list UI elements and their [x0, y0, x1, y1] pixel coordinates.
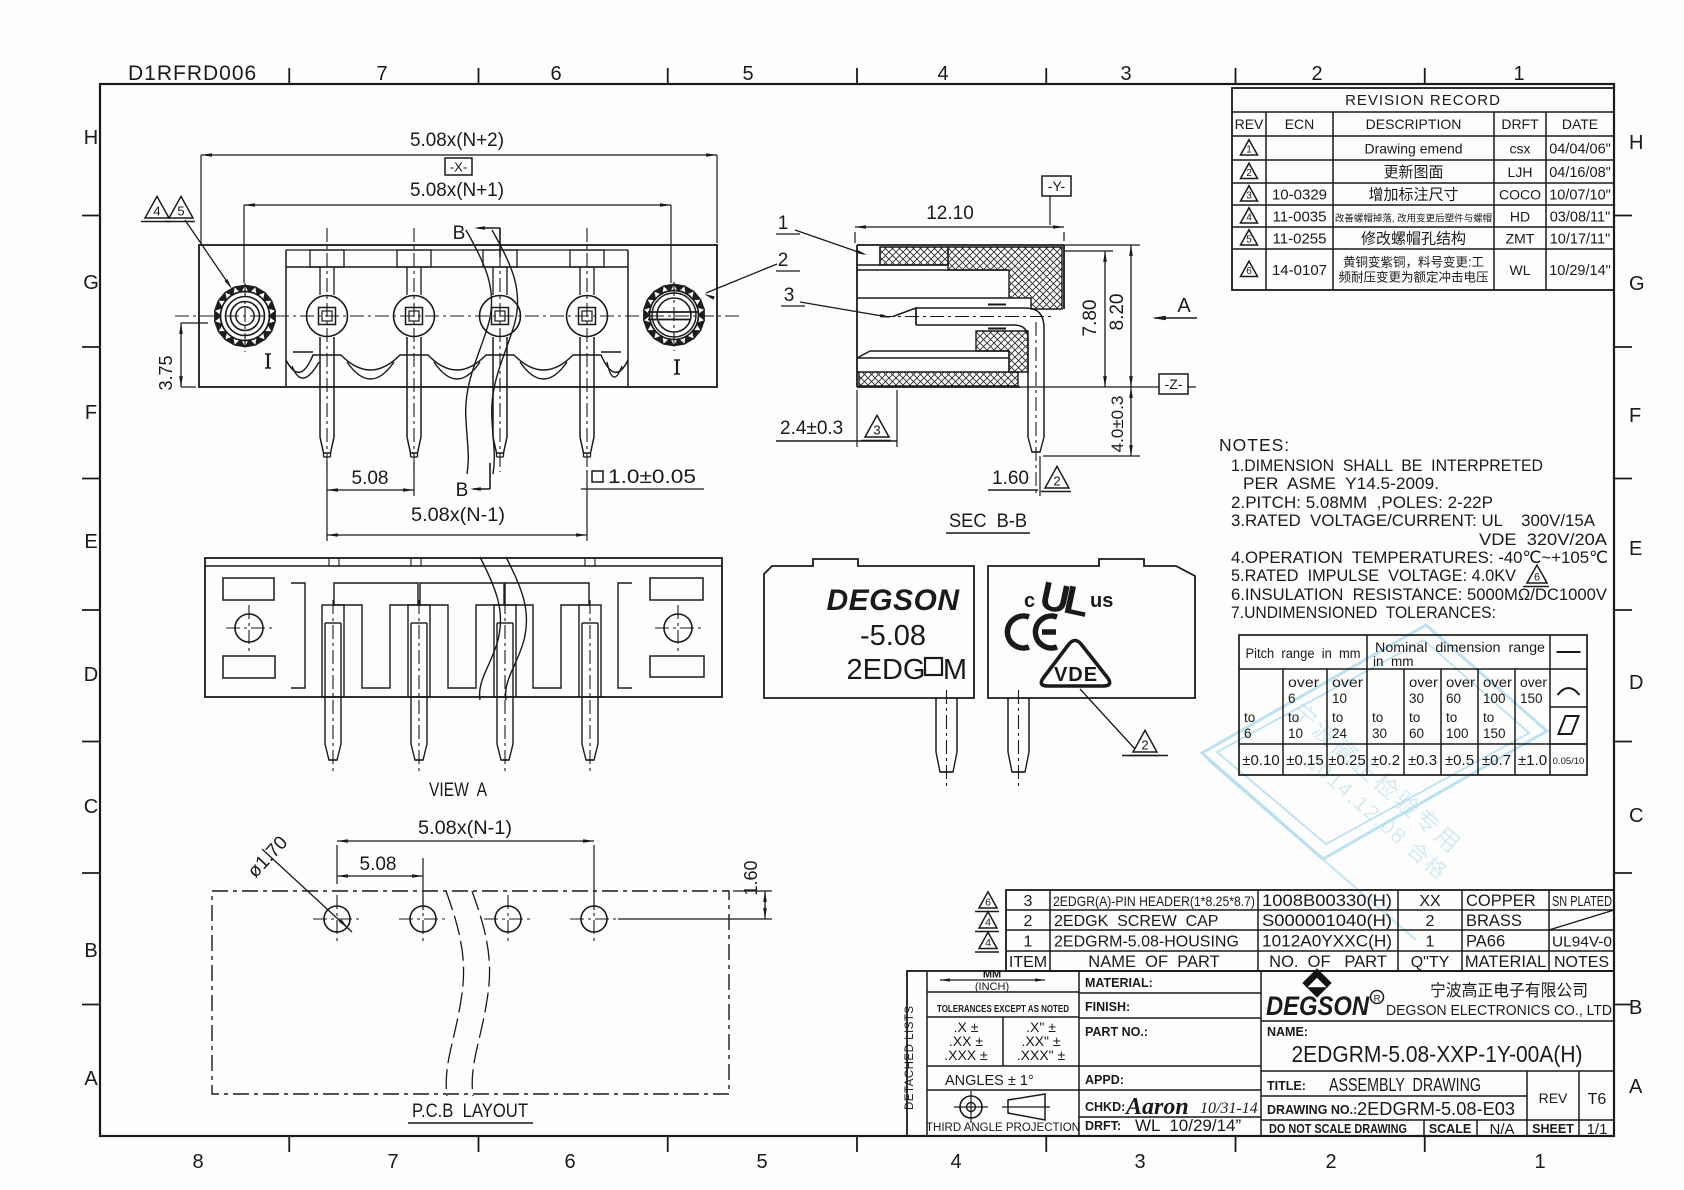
svg-text:2EDGR(A)-PIN HEADER(1*8.25*8.7: 2EDGR(A)-PIN HEADER(1*8.25*8.7): [1053, 893, 1255, 909]
svg-text:DESCRIPTION: DESCRIPTION: [1366, 116, 1462, 132]
svg-text:ECN: ECN: [1285, 116, 1315, 132]
svg-text:REV: REV: [1235, 116, 1264, 132]
svg-text:150: 150: [1483, 726, 1506, 741]
svg-text:4: 4: [1246, 213, 1252, 224]
svg-text:(INCH): (INCH): [975, 981, 1009, 993]
svg-text:4.OPERATION TEMPERATURES: -40: 4.OPERATION TEMPERATURES: -40℃~+105℃: [1231, 548, 1608, 567]
svg-text:Pitch range in mm: Pitch range in mm: [1246, 646, 1361, 661]
svg-text:TITLE:: TITLE:: [1267, 1079, 1306, 1093]
svg-text:±0.2: ±0.2: [1371, 752, 1400, 769]
svg-text:ASSEMBLY DRAWING: ASSEMBLY DRAWING: [1329, 1075, 1481, 1095]
svg-text:M: M: [943, 654, 967, 686]
svg-text:5.08x(N-1): 5.08x(N-1): [411, 505, 505, 526]
svg-text:SEC B-B: SEC B-B: [949, 511, 1027, 532]
svg-text:-X-: -X-: [450, 160, 467, 175]
svg-text:10/07/10": 10/07/10": [1549, 188, 1611, 204]
svg-text:2EDG: 2EDG: [847, 654, 926, 686]
svg-text:THIRD ANGLE PROJECTION: THIRD ANGLE PROJECTION: [926, 1122, 1080, 1134]
svg-text:UL94V-0: UL94V-0: [1552, 935, 1612, 951]
svg-text:黄铜变紫铜，料号变更:工: 黄铜变紫铜，料号变更:工: [1343, 255, 1484, 270]
svg-text:6.INSULATION RESISTANCE: 5000: 6.INSULATION RESISTANCE: 5000MΩ/DC1000V: [1231, 585, 1608, 604]
svg-text:12.10: 12.10: [926, 203, 974, 224]
svg-text:1.60: 1.60: [992, 468, 1029, 489]
svg-text:10: 10: [1288, 726, 1303, 741]
svg-text:6: 6: [1288, 691, 1296, 706]
svg-text:CHKD:: CHKD:: [1085, 1100, 1125, 1114]
svg-text:5: 5: [756, 1151, 767, 1173]
svg-text:1.60: 1.60: [741, 860, 761, 895]
svg-text:F: F: [1629, 405, 1641, 427]
svg-text:DEGSON: DEGSON: [1266, 991, 1369, 1021]
svg-text:PA66: PA66: [1466, 933, 1505, 951]
svg-text:NO. OF PART: NO. OF PART: [1269, 953, 1387, 971]
svg-text:150: 150: [1520, 691, 1543, 706]
svg-text:2: 2: [1024, 913, 1033, 930]
svg-text:4: 4: [985, 937, 991, 949]
svg-text:1: 1: [778, 213, 789, 234]
svg-text:10/31-14: 10/31-14: [1200, 1100, 1258, 1117]
svg-text:MM: MM: [983, 969, 1001, 981]
svg-text:DRFT: DRFT: [1501, 116, 1539, 132]
svg-text:6: 6: [550, 63, 561, 85]
svg-text:SCALE: SCALE: [1429, 1122, 1471, 1136]
svg-text:Nominal dimension range: Nominal dimension range: [1375, 640, 1545, 655]
svg-text:5: 5: [1246, 235, 1252, 246]
svg-text:6: 6: [985, 897, 991, 909]
svg-text:100: 100: [1483, 691, 1506, 706]
svg-text:C: C: [1629, 805, 1643, 827]
svg-text:REV: REV: [1539, 1090, 1568, 1106]
svg-text:ZMT: ZMT: [1506, 231, 1535, 247]
svg-text:14-0107: 14-0107: [1272, 262, 1327, 279]
svg-text:±0.10: ±0.10: [1242, 752, 1279, 769]
svg-text:to: to: [1372, 710, 1383, 725]
svg-text:E: E: [1629, 538, 1642, 560]
svg-text:B: B: [456, 480, 469, 501]
svg-text:T6: T6: [1588, 1091, 1607, 1108]
svg-text:0.05/10: 0.05/10: [1553, 756, 1585, 767]
svg-text:B: B: [453, 223, 466, 244]
svg-text:7.80: 7.80: [1080, 300, 1101, 337]
svg-text:2: 2: [1325, 1151, 1336, 1173]
svg-text:LJH: LJH: [1508, 164, 1533, 180]
svg-text:Q"TY: Q"TY: [1411, 954, 1450, 971]
svg-text:3: 3: [1246, 191, 1252, 202]
svg-text:COCO: COCO: [1499, 187, 1541, 203]
svg-text:4: 4: [985, 917, 991, 929]
svg-text:3: 3: [1134, 1151, 1145, 1173]
svg-text:MATERIAL:: MATERIAL:: [1085, 976, 1153, 990]
svg-text:to: to: [1446, 710, 1457, 725]
svg-text:增加标注尺寸: 增加标注尺寸: [1368, 187, 1458, 204]
svg-text:±0.25: ±0.25: [1328, 752, 1365, 769]
svg-text:N/A: N/A: [1489, 1121, 1514, 1138]
svg-text:03/08/11": 03/08/11": [1550, 210, 1611, 226]
svg-text:to: to: [1409, 710, 1420, 725]
svg-text:30: 30: [1409, 691, 1424, 706]
svg-text:±0.7: ±0.7: [1482, 752, 1511, 769]
svg-text:DEGSON ELECTRONICS CO., LTD: DEGSON ELECTRONICS CO., LTD: [1386, 1002, 1612, 1019]
svg-text:Drawing emend: Drawing emend: [1364, 141, 1462, 157]
svg-text:COPPER: COPPER: [1466, 892, 1536, 910]
svg-text:5.08: 5.08: [352, 468, 389, 489]
svg-text:G: G: [83, 272, 99, 294]
svg-text:7: 7: [376, 63, 387, 85]
svg-text:over: over: [1332, 675, 1364, 690]
svg-text:-Y-: -Y-: [1048, 178, 1066, 194]
svg-text:to: to: [1332, 710, 1343, 725]
svg-text:改善螺帽掉落, 改用变更后塑件与螺帽: 改善螺帽掉落, 改用变更后塑件与螺帽: [1335, 213, 1492, 225]
svg-text:ANGLES ± 1°: ANGLES ± 1°: [945, 1073, 1034, 1089]
svg-text:over: over: [1483, 675, 1513, 690]
svg-text:DRFT:: DRFT:: [1085, 1119, 1121, 1133]
svg-text:4: 4: [950, 1151, 961, 1173]
svg-text:6: 6: [1246, 266, 1252, 277]
svg-text:DATE: DATE: [1562, 116, 1598, 132]
svg-text:to: to: [1288, 710, 1299, 725]
svg-text:2: 2: [1311, 63, 1322, 85]
svg-text:MATERIAL: MATERIAL: [1465, 953, 1546, 971]
svg-text:1: 1: [1246, 145, 1252, 156]
svg-text:5.08x(N+1): 5.08x(N+1): [410, 180, 504, 201]
svg-text:5: 5: [177, 204, 184, 219]
svg-text:B: B: [84, 940, 97, 962]
svg-text:2: 2: [1426, 913, 1435, 930]
svg-text:60: 60: [1409, 726, 1424, 741]
svg-text:in mm: in mm: [1373, 654, 1414, 669]
svg-text:XX: XX: [1419, 893, 1441, 910]
svg-text:A: A: [1629, 1076, 1643, 1098]
svg-text:6: 6: [564, 1151, 575, 1173]
svg-text:over: over: [1520, 675, 1548, 690]
svg-text:FINISH:: FINISH:: [1085, 1000, 1130, 1014]
svg-text:over: over: [1446, 675, 1476, 690]
svg-text:DRAWING NO.:: DRAWING NO.:: [1267, 1103, 1357, 1117]
svg-text:4.0±0.3: 4.0±0.3: [1108, 396, 1127, 453]
svg-text:over: over: [1409, 675, 1439, 690]
svg-text:修改螺帽孔结构: 修改螺帽孔结构: [1361, 231, 1466, 248]
svg-text:1008B00330(H): 1008B00330(H): [1262, 892, 1392, 910]
svg-text:1: 1: [1534, 1151, 1545, 1173]
svg-text:2EDGRM-5.08-E03: 2EDGRM-5.08-E03: [1357, 1099, 1515, 1119]
svg-text:.XXX" ±: .XXX" ±: [1017, 1047, 1066, 1063]
svg-text:D: D: [84, 664, 98, 686]
svg-text:over: over: [1288, 675, 1320, 690]
svg-text:24: 24: [1332, 726, 1348, 741]
svg-text:更新图面: 更新图面: [1383, 164, 1443, 181]
svg-text:2.4±0.3: 2.4±0.3: [780, 418, 843, 439]
svg-text:04/16/08": 04/16/08": [1549, 165, 1611, 181]
svg-text:VIEW A: VIEW A: [429, 780, 487, 801]
svg-text:DEGSON: DEGSON: [826, 584, 960, 617]
svg-text:宁波高正电子有限公司: 宁波高正电子有限公司: [1430, 981, 1588, 1000]
svg-text:NAME OF PART: NAME OF PART: [1088, 953, 1219, 971]
svg-text:A: A: [84, 1068, 98, 1090]
svg-text:2.PITCH: 5.08MM ,POLES: 2-22P: 2.PITCH: 5.08MM ,POLES: 2-22P: [1231, 493, 1493, 512]
svg-text:VDE: VDE: [1054, 664, 1098, 686]
svg-text:1/1: 1/1: [1587, 1121, 1608, 1138]
svg-text:04/04/06": 04/04/06": [1549, 142, 1611, 158]
svg-text:3: 3: [1120, 63, 1131, 85]
svg-text:csx: csx: [1510, 141, 1531, 157]
svg-text:Aaron: Aaron: [1124, 1094, 1189, 1120]
svg-text:2: 2: [1141, 738, 1148, 753]
svg-text:1012A0YXXC(H): 1012A0YXXC(H): [1262, 933, 1392, 951]
svg-text:10: 10: [1332, 691, 1347, 706]
svg-text:2EDGK SCREW CAP: 2EDGK SCREW CAP: [1054, 913, 1218, 930]
svg-text:H: H: [84, 127, 98, 149]
svg-text:SHEET: SHEET: [1532, 1122, 1574, 1136]
svg-text:2: 2: [778, 250, 789, 271]
svg-text:±0.5: ±0.5: [1445, 752, 1474, 769]
svg-text:ITEM: ITEM: [1009, 954, 1047, 971]
svg-text:E: E: [84, 531, 97, 553]
svg-text:2EDGRM-5.08-XXP-1Y-00A(H): 2EDGRM-5.08-XXP-1Y-00A(H): [1292, 1041, 1583, 1067]
svg-text:WL: WL: [1510, 262, 1531, 278]
svg-text:3: 3: [873, 423, 880, 438]
svg-text:B: B: [1629, 997, 1642, 1019]
svg-text:REVISION RECORD: REVISION RECORD: [1345, 92, 1501, 109]
svg-text:6: 6: [1244, 726, 1252, 741]
svg-text:.XXX ±: .XXX ±: [944, 1047, 988, 1063]
svg-text:±0.3: ±0.3: [1408, 752, 1437, 769]
svg-text:-Z-: -Z-: [1165, 376, 1183, 392]
svg-text:5.RATED IMPULSE VOLTAGE: 4.0: 5.RATED IMPULSE VOLTAGE: 4.0KV: [1231, 566, 1517, 585]
svg-text:4: 4: [937, 63, 948, 85]
svg-text:10-0329: 10-0329: [1272, 187, 1327, 204]
svg-text:±1.0: ±1.0: [1518, 752, 1547, 769]
svg-text:2EDGRM-5.08-HOUSING: 2EDGRM-5.08-HOUSING: [1054, 934, 1239, 951]
svg-text:DETACHED LISTS: DETACHED LISTS: [904, 1005, 916, 1110]
svg-text:7: 7: [387, 1151, 398, 1173]
svg-text:1.0±0.05: 1.0±0.05: [608, 467, 696, 488]
svg-text:R: R: [1374, 994, 1381, 1005]
svg-text:TOLERANCES EXCEPT AS NOTED: TOLERANCES EXCEPT AS NOTED: [937, 1004, 1069, 1015]
svg-text:8.20: 8.20: [1107, 294, 1128, 331]
svg-text:频耐压变更为额定冲击电压: 频耐压变更为额定冲击电压: [1338, 270, 1488, 285]
svg-text:10/29/14": 10/29/14": [1549, 263, 1611, 279]
svg-text:1.DIMENSION SHALL BE INTERP: 1.DIMENSION SHALL BE INTERPRETED: [1231, 456, 1543, 475]
svg-text:us: us: [1090, 590, 1113, 612]
svg-text:NOTES:: NOTES:: [1219, 435, 1290, 455]
svg-text:3.RATED VOLTAGE/CURRENT: UL: 3.RATED VOLTAGE/CURRENT: UL 300V/15A: [1231, 511, 1596, 530]
svg-text:100: 100: [1446, 726, 1469, 741]
svg-text:2: 2: [1053, 474, 1060, 489]
svg-text:H: H: [1629, 132, 1643, 154]
svg-text:3: 3: [784, 285, 795, 306]
svg-text:G: G: [1629, 273, 1645, 295]
svg-text:S000001040(H): S000001040(H): [1262, 912, 1392, 930]
svg-text:HD: HD: [1510, 209, 1530, 225]
svg-text:DO NOT SCALE DRAWING: DO NOT SCALE DRAWING: [1269, 1122, 1407, 1136]
svg-text:6: 6: [1534, 572, 1540, 584]
svg-text:11-0255: 11-0255: [1273, 231, 1327, 248]
svg-text:D: D: [1629, 672, 1643, 694]
svg-text:1: 1: [1513, 63, 1524, 85]
svg-text:P.C.B LAYOUT: P.C.B LAYOUT: [412, 1101, 528, 1122]
svg-text:60: 60: [1446, 691, 1461, 706]
svg-text:5.08: 5.08: [360, 854, 397, 875]
svg-text:A: A: [1177, 295, 1191, 317]
svg-text:PART NO.:: PART NO.:: [1085, 1025, 1148, 1039]
svg-text:APPD:: APPD:: [1085, 1073, 1124, 1087]
svg-text:SN PLATED: SN PLATED: [1552, 894, 1612, 910]
svg-text:11-0035: 11-0035: [1273, 209, 1327, 226]
svg-text:F: F: [85, 402, 97, 424]
svg-text:2: 2: [1246, 168, 1252, 179]
svg-text:BRASS: BRASS: [1466, 912, 1522, 930]
svg-text:3.75: 3.75: [156, 355, 176, 390]
svg-text:D1RFRD006: D1RFRD006: [128, 62, 257, 85]
svg-text:30: 30: [1372, 726, 1387, 741]
svg-text:PER ASME Y14.5-2009.: PER ASME Y14.5-2009.: [1243, 474, 1439, 493]
svg-text:5.08x(N-1): 5.08x(N-1): [418, 818, 512, 839]
svg-text:C: C: [84, 796, 98, 818]
svg-text:5.08x(N+2): 5.08x(N+2): [410, 130, 504, 151]
svg-text:NOTES: NOTES: [1554, 954, 1609, 971]
svg-text:10/17/11": 10/17/11": [1550, 232, 1611, 248]
svg-text:NAME:: NAME:: [1267, 1025, 1308, 1039]
svg-text:to: to: [1244, 710, 1255, 725]
svg-text:-5.08: -5.08: [860, 620, 926, 652]
svg-text:3: 3: [1024, 893, 1033, 910]
svg-text:VDE 320V/20A: VDE 320V/20A: [1479, 530, 1608, 549]
svg-text:7.UNDIMENSIONED TOLERANCES:: 7.UNDIMENSIONED TOLERANCES:: [1231, 603, 1496, 622]
svg-text:5: 5: [742, 63, 753, 85]
svg-text:to: to: [1483, 710, 1494, 725]
svg-text:8: 8: [192, 1151, 203, 1173]
svg-text:±0.15: ±0.15: [1286, 752, 1323, 769]
svg-text:1: 1: [1426, 934, 1435, 951]
svg-text:c: c: [1024, 590, 1035, 612]
svg-text:4: 4: [153, 204, 160, 219]
svg-text:1: 1: [1024, 934, 1033, 951]
